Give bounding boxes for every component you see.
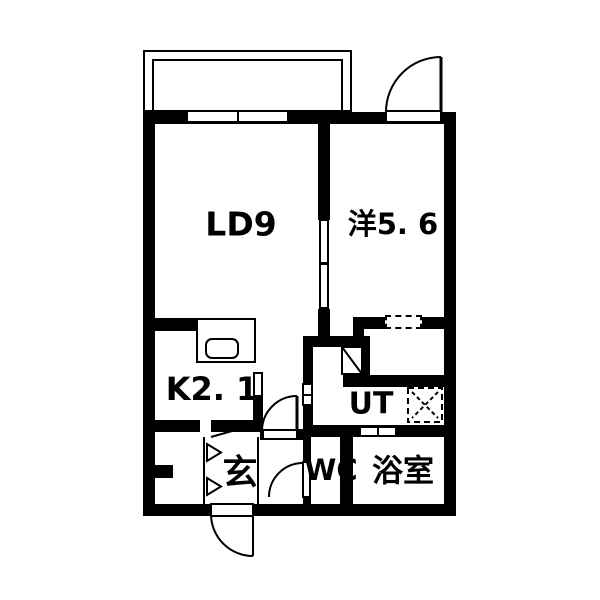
wall-left xyxy=(143,110,155,516)
room-label-toilet: WC xyxy=(304,453,357,487)
wall-kitchen-bottom-left xyxy=(143,420,200,432)
wall-hall-right-upper xyxy=(303,347,313,385)
kitchen-door-sill xyxy=(262,429,298,440)
door-swing-arc-western xyxy=(386,57,441,112)
closet-folding-door xyxy=(385,315,422,329)
bathroom-folding-door xyxy=(359,426,397,437)
wall-right xyxy=(444,112,456,516)
room-label-western: 洋5. 6 xyxy=(348,201,438,243)
kitchen-wall-opening xyxy=(200,420,211,432)
room-label-living-dining: LD9 xyxy=(205,205,276,244)
shoe-shelf-arrows xyxy=(207,478,221,495)
sliding-door-panel-lower xyxy=(319,263,329,309)
wall-bottom xyxy=(143,504,456,516)
wall-ut-top xyxy=(303,336,370,347)
washing-machine-cross xyxy=(412,392,438,418)
washing-machine-cross xyxy=(412,392,438,418)
wall-closet-bottom xyxy=(343,375,444,387)
room-label-entrance: 玄 xyxy=(222,445,257,496)
room-label-utility: UT xyxy=(349,387,394,422)
entrance-door-sill xyxy=(210,503,254,517)
shoebox-line xyxy=(203,437,205,504)
sink-icon xyxy=(205,338,239,359)
washing-machine-icon xyxy=(408,388,442,422)
wall-storage-stub xyxy=(155,465,173,478)
room-label-kitchen: K2. 1 xyxy=(166,370,259,408)
door-swing-arc-entrance xyxy=(211,514,253,556)
hall-ut-opening xyxy=(302,383,313,406)
vanity-icon xyxy=(342,347,362,374)
balcony-inner-rail xyxy=(152,59,343,112)
shoe-shelf-arrows xyxy=(207,444,221,461)
room-label-bathroom: 浴室 xyxy=(372,446,434,491)
vanity-diagonal xyxy=(342,347,362,374)
wall-ld-western-upper xyxy=(318,112,330,220)
wall-kitchen-stub xyxy=(155,318,196,331)
western-entry-door-sill xyxy=(385,110,442,123)
wall-vanity-right xyxy=(360,347,370,378)
sliding-door-panel-upper xyxy=(319,219,329,264)
ld-balcony-window xyxy=(186,110,289,123)
door-swing-arc-kitchen xyxy=(262,396,297,431)
door-swing-arc-wc xyxy=(269,463,303,497)
floor-plan: LD9 洋5. 6 K2. 1 UT 玄 WC 浴室 xyxy=(0,0,600,600)
